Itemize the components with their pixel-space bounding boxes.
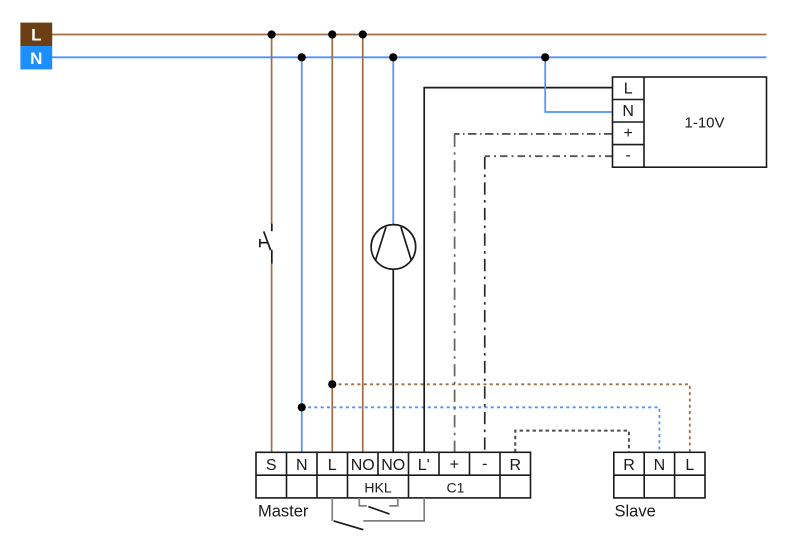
svg-text:+: +: [624, 125, 633, 142]
svg-text:N: N: [654, 457, 666, 474]
svg-text:1-10V: 1-10V: [684, 114, 724, 131]
svg-text:L': L': [418, 457, 430, 474]
svg-text:N: N: [30, 49, 42, 68]
svg-text:-: -: [626, 147, 631, 164]
svg-text:Slave: Slave: [615, 503, 656, 521]
svg-text:NO: NO: [351, 457, 375, 474]
svg-text:C1: C1: [447, 479, 465, 495]
svg-text:L: L: [624, 80, 633, 97]
svg-text:-: -: [482, 456, 487, 473]
svg-text:R: R: [509, 457, 521, 474]
svg-text:S: S: [266, 457, 277, 474]
svg-text:HKL: HKL: [364, 479, 391, 495]
svg-text:L: L: [685, 457, 694, 474]
svg-text:N: N: [296, 457, 308, 474]
svg-text:NO: NO: [381, 457, 405, 474]
svg-text:L: L: [31, 26, 41, 45]
svg-text:+: +: [450, 457, 459, 474]
svg-text:N: N: [622, 103, 634, 120]
svg-text:Master: Master: [258, 503, 309, 521]
svg-text:L: L: [328, 457, 337, 474]
svg-text:R: R: [623, 457, 635, 474]
